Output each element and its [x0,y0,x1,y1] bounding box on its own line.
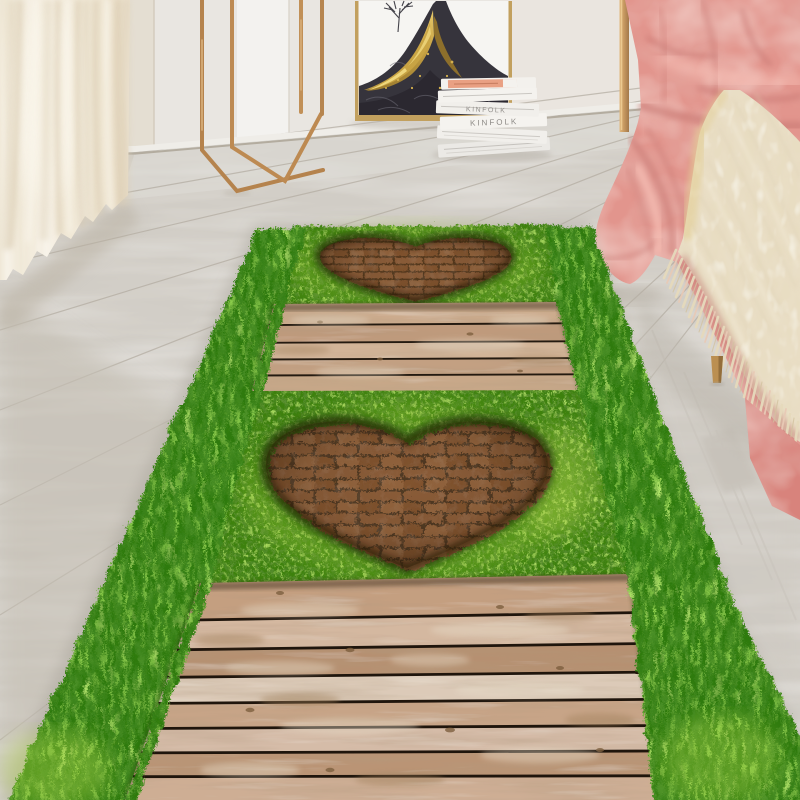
svg-text:KINFOLK: KINFOLK [466,106,507,114]
svg-text:KINFOLK: KINFOLK [470,117,519,128]
